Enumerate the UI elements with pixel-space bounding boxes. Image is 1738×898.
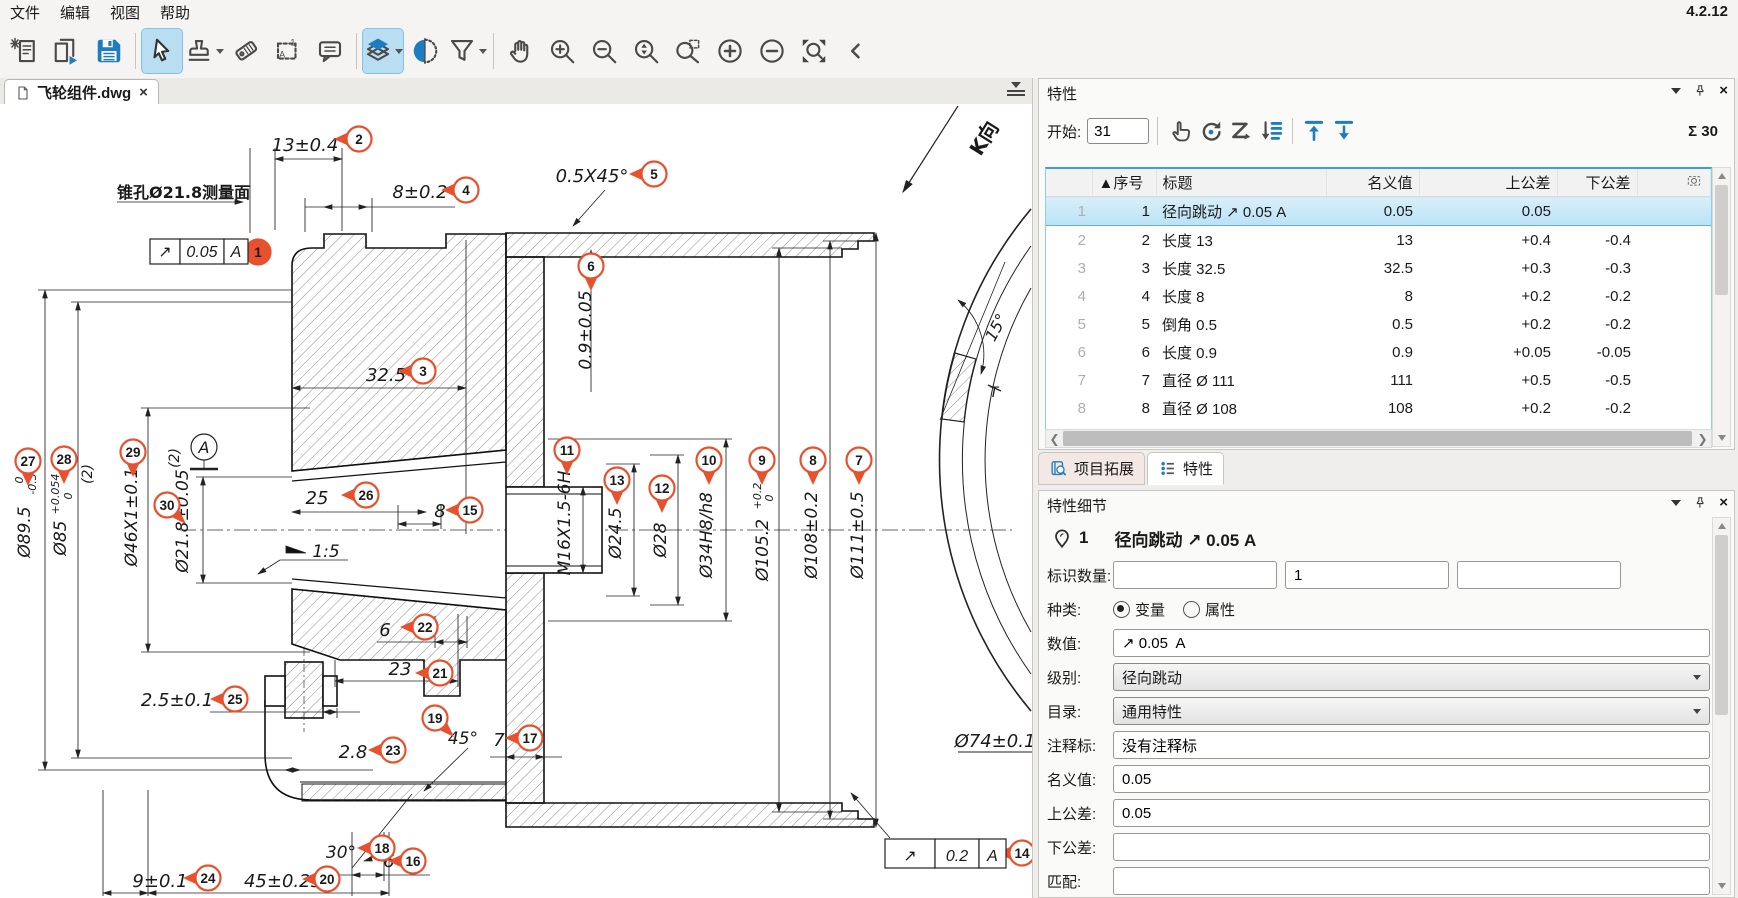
details-panel: 特性细节 × 1 径向跳动 ↗ 0.05 A 标识数量: xyxy=(1038,490,1735,898)
col-nominal: 名义值 xyxy=(1326,169,1419,197)
balloon-15[interactable]: 15 xyxy=(445,498,483,523)
table-cell: -0.4 xyxy=(1557,226,1637,255)
dimension-label: Ø108±0.2 xyxy=(802,491,822,579)
svg-text:15: 15 xyxy=(462,503,478,518)
balloon-2[interactable]: 2 xyxy=(334,127,372,152)
properties-panel-title: 特性 xyxy=(1039,79,1734,107)
dimension-label: Ø105.2 xyxy=(753,519,773,582)
increase-button[interactable] xyxy=(710,29,750,73)
stamp-icon xyxy=(184,36,214,66)
lower-tolerance-input[interactable] xyxy=(1113,833,1710,861)
menu-item-1[interactable]: 编辑 xyxy=(50,0,100,25)
dimension-label: 1:5 xyxy=(312,542,339,562)
decrease-icon xyxy=(757,36,787,66)
feature-control-frame: ↗0.2A xyxy=(885,839,1006,868)
zoom-fit-icon xyxy=(799,36,829,66)
save-icon xyxy=(94,36,124,66)
table-cell: +0.2 xyxy=(1419,282,1557,310)
table-cell: +0.05 xyxy=(1419,338,1557,366)
sortlist-icon xyxy=(1258,118,1284,144)
drawing-canvas[interactable]: 锥孔Ø21.8测量面13±0.48±0.20.5X45°32.52581:562… xyxy=(0,104,1032,898)
balloon-9[interactable]: 9 xyxy=(750,448,775,486)
start-label: 开始: xyxy=(1047,121,1081,142)
table-cell: 0.9 xyxy=(1326,338,1419,366)
svg-text:17: 17 xyxy=(522,731,537,746)
dimension-label: K向 xyxy=(964,117,1003,160)
dimension-label: Ø111±0.5 xyxy=(848,491,868,579)
zoom-fit-button[interactable] xyxy=(794,29,834,73)
id-count-input-2[interactable] xyxy=(1285,561,1449,589)
table-cell xyxy=(1637,310,1711,338)
dimension-label: 6 xyxy=(379,620,390,641)
dimension-label: M16X1.5-6H xyxy=(555,470,575,575)
properties-table: ▲序号 标题 名义值 上公差 下公差 11径向跳动 ↗ 0.05 A0.050.… xyxy=(1046,169,1711,422)
kind-radio-attribute-label: 属性 xyxy=(1205,599,1235,620)
dimension-label: Ø85 xyxy=(51,520,71,556)
table-cell: -0.2 xyxy=(1557,282,1637,310)
table-cell: +0.5 xyxy=(1419,366,1557,394)
upper-tolerance-label: 上公差: xyxy=(1047,803,1113,824)
svg-text:7: 7 xyxy=(855,453,863,468)
svg-text:A: A xyxy=(986,848,998,865)
dimension-label: Ø74±0.1 xyxy=(954,731,1032,752)
hand-point-button[interactable] xyxy=(1166,116,1196,146)
value-input[interactable] xyxy=(1113,629,1710,657)
rotate-button[interactable] xyxy=(1196,116,1226,146)
svg-text:19: 19 xyxy=(427,711,442,726)
dimension-label: T xyxy=(990,385,1000,401)
table-cell: 7 xyxy=(1046,366,1092,394)
hscroll-left-icon[interactable]: ❮ xyxy=(1046,432,1063,446)
dropdown-arrow-icon[interactable] xyxy=(216,49,224,54)
document-tab[interactable]: 飞轮组件.dwg × xyxy=(4,79,159,105)
table-cell: 长度 13 xyxy=(1156,226,1326,255)
level-select[interactable]: 径向跳动 xyxy=(1113,663,1710,691)
balloon-23[interactable]: 23 xyxy=(368,738,406,763)
select-cursor-button[interactable] xyxy=(142,29,182,73)
svg-text:25: 25 xyxy=(227,692,243,707)
menu-item-2[interactable]: 视图 xyxy=(100,0,150,25)
dimension-label: 0 xyxy=(763,495,776,502)
col-lower: 下公差 xyxy=(1557,169,1637,197)
table-cell: 108 xyxy=(1326,394,1419,422)
hscroll-thumb[interactable] xyxy=(1063,431,1692,446)
svg-text:16: 16 xyxy=(405,854,421,869)
svg-text:3: 3 xyxy=(419,364,427,379)
table-cell: 111 xyxy=(1326,366,1419,394)
zoom-out-button[interactable] xyxy=(584,29,624,73)
table-cell xyxy=(1637,197,1711,226)
note-input[interactable] xyxy=(1113,731,1710,759)
balloon-19[interactable]: 19 xyxy=(423,706,455,738)
sortlist-button[interactable] xyxy=(1256,116,1286,146)
table-cell xyxy=(1637,366,1711,394)
id-count-input-3[interactable] xyxy=(1457,561,1621,589)
table-cell xyxy=(1557,197,1637,226)
dimension-label: Ø34H8/h8 xyxy=(697,492,717,579)
menu-item-0[interactable]: 文件 xyxy=(0,0,50,25)
panel-close-icon[interactable]: × xyxy=(1719,84,1728,98)
table-cell: 长度 32.5 xyxy=(1156,254,1326,282)
svg-text:9: 9 xyxy=(758,453,766,468)
table-row[interactable]: 11径向跳动 ↗ 0.05 A0.050.05 xyxy=(1046,197,1711,226)
select-cursor-icon xyxy=(147,36,177,66)
svg-text:5: 5 xyxy=(650,167,658,182)
match-label: 匹配: xyxy=(1047,871,1113,892)
table-cell: 1 xyxy=(1046,197,1092,226)
table-cell: 6 xyxy=(1092,338,1156,366)
svg-text:0.2: 0.2 xyxy=(946,848,968,865)
tag-icon xyxy=(231,36,261,66)
filter-icon xyxy=(447,36,477,66)
main-toolbar xyxy=(0,24,1738,79)
balloon-13[interactable]: 13 xyxy=(605,468,630,506)
svg-text:21: 21 xyxy=(432,666,448,681)
filter-button[interactable] xyxy=(447,29,487,73)
balloon-10[interactable]: 10 xyxy=(697,448,722,486)
balloon-18[interactable]: 18 xyxy=(357,836,395,861)
project-expand-icon xyxy=(1049,459,1068,478)
down-bar-icon xyxy=(1331,118,1357,144)
table-cell: 长度 8 xyxy=(1156,282,1326,310)
kind-radio-attribute[interactable] xyxy=(1183,601,1200,618)
table-cell xyxy=(1637,254,1711,282)
kind-label: 种类: xyxy=(1047,599,1113,620)
up-bar-button[interactable] xyxy=(1299,116,1329,146)
dimension-label: 9±0.1 xyxy=(132,871,187,892)
table-row[interactable]: 22长度 1313+0.4-0.4 xyxy=(1046,226,1711,255)
svg-text:22: 22 xyxy=(417,620,432,635)
region-select-button[interactable] xyxy=(268,29,308,73)
open-document-icon xyxy=(52,36,82,66)
dimension-label: 45° xyxy=(448,729,478,749)
start-input[interactable] xyxy=(1087,118,1149,144)
svg-text:11: 11 xyxy=(560,443,575,458)
table-cell: 直径 Ø 111 xyxy=(1156,366,1326,394)
detail-item-title: 径向跳动 ↗ 0.05 A xyxy=(1114,526,1256,551)
balloon-7[interactable]: 7 xyxy=(847,448,872,486)
table-hscrollbar[interactable]: ❮ ❯ xyxy=(1045,429,1712,448)
zoom-window-icon xyxy=(673,36,703,66)
svg-text:26: 26 xyxy=(358,488,374,503)
dimension-label: 0 xyxy=(62,493,75,500)
svg-text:8: 8 xyxy=(809,453,817,468)
table-cell: 4 xyxy=(1046,282,1092,310)
catalog-label: 目录: xyxy=(1047,701,1113,722)
table-cell: 13 xyxy=(1326,226,1419,255)
kind-radio-variable[interactable] xyxy=(1113,601,1130,618)
level-value: 径向跳动 xyxy=(1122,667,1182,688)
svg-text:↗: ↗ xyxy=(903,848,916,865)
id-count-label: 标识数量: xyxy=(1047,565,1113,586)
table-cell: 2 xyxy=(1092,226,1156,255)
comment-button[interactable] xyxy=(310,29,350,73)
table-cell: 5 xyxy=(1092,310,1156,338)
table-row[interactable]: 77直径 Ø 111111+0.5-0.5 xyxy=(1046,366,1711,394)
table-cell: 倒角 0.5 xyxy=(1156,310,1326,338)
zoom-out-icon xyxy=(589,36,619,66)
new-document-button[interactable] xyxy=(5,29,45,73)
table-cell: +0.4 xyxy=(1419,226,1557,255)
svg-text:10: 10 xyxy=(701,453,716,468)
dimension-label: 13±0.4 xyxy=(272,135,339,156)
dimension-label: Ø28 xyxy=(651,522,671,558)
nominal-label: 名义值: xyxy=(1047,769,1113,790)
table-row[interactable]: 88直径 Ø 108108+0.2-0.2 xyxy=(1046,394,1711,422)
dimension-label: 2.5±0.1 xyxy=(141,690,213,711)
table-cell: 2 xyxy=(1046,226,1092,255)
zoom-range-button[interactable] xyxy=(626,29,666,73)
id-count-input-1[interactable] xyxy=(1113,561,1277,589)
table-cell: +0.3 xyxy=(1419,254,1557,282)
table-cell: 6 xyxy=(1046,338,1092,366)
table-cell: 7 xyxy=(1092,366,1156,394)
document-area: 飞轮组件.dwg × xyxy=(0,78,1032,898)
table-row[interactable]: 33长度 32.532.5+0.3-0.3 xyxy=(1046,254,1711,282)
table-cell: 3 xyxy=(1092,254,1156,282)
details-pin-icon[interactable] xyxy=(1693,496,1707,510)
match-input[interactable] xyxy=(1113,867,1710,895)
up-bar-icon xyxy=(1301,118,1327,144)
feature-control-frame: ↗0.05A xyxy=(150,239,248,264)
panel-pin-icon[interactable] xyxy=(1693,84,1707,98)
table-vscrollbar[interactable] xyxy=(1712,167,1731,447)
dropdown-arrow-icon[interactable] xyxy=(395,49,403,54)
svg-text:13: 13 xyxy=(609,473,625,488)
tab-project-expand[interactable]: 项目拓展 xyxy=(1038,452,1145,485)
details-collapse-icon[interactable] xyxy=(1671,500,1681,506)
dimension-label: 32.5 xyxy=(366,365,406,386)
zoom-in-button[interactable] xyxy=(542,29,582,73)
dimension-label: 8±0.2 xyxy=(392,182,447,203)
table-cell: -0.5 xyxy=(1557,366,1637,394)
svg-text:23: 23 xyxy=(385,743,401,758)
table-cell: 直径 Ø 108 xyxy=(1156,394,1326,422)
table-cell: 3 xyxy=(1046,254,1092,282)
tab-close-button[interactable]: × xyxy=(139,84,148,101)
workspace: 飞轮组件.dwg × xyxy=(0,78,1738,898)
side-panels: 特性 × 开始: Σ 30 ▲序号 标题 xyxy=(1032,78,1738,898)
vscroll-thumb[interactable] xyxy=(1715,185,1728,295)
new-document-icon xyxy=(10,36,40,66)
dimension-label: 25 xyxy=(306,488,329,509)
balloon-21[interactable]: 21 xyxy=(415,661,453,686)
tab-properties-label: 特性 xyxy=(1183,458,1213,479)
table-header-row[interactable]: ▲序号 标题 名义值 上公差 下公差 xyxy=(1046,169,1711,197)
balloon-8[interactable]: 8 xyxy=(801,448,826,486)
svg-text:30: 30 xyxy=(159,498,174,513)
svg-text:↗: ↗ xyxy=(158,244,171,261)
zoom-in-icon xyxy=(547,36,577,66)
table-cell: 5 xyxy=(1046,310,1092,338)
app-version: 4.2.12 xyxy=(1686,3,1728,20)
lower-tolerance-label: 下公差: xyxy=(1047,837,1113,858)
zorder-icon xyxy=(1228,118,1254,144)
table-cell: 4 xyxy=(1092,282,1156,310)
detail-item-number: 1 xyxy=(1079,528,1088,548)
balloon-12[interactable]: 12 xyxy=(650,476,675,514)
k-view-arcs xyxy=(939,209,1032,752)
menu-item-3[interactable]: 帮助 xyxy=(150,0,200,25)
dimension-label: 7 xyxy=(493,730,505,751)
table-row[interactable]: 66长度 0.90.9+0.05-0.05 xyxy=(1046,338,1711,366)
document-tabstrip: 飞轮组件.dwg × xyxy=(0,78,1032,105)
tab-properties[interactable]: 特性 xyxy=(1147,452,1224,485)
table-cell: 0.5 xyxy=(1326,310,1419,338)
menu-bar: 文件编辑视图帮助 xyxy=(0,0,1738,24)
section-view-icon xyxy=(410,36,440,66)
level-label: 级别: xyxy=(1047,667,1113,688)
details-close-icon[interactable]: × xyxy=(1719,496,1728,510)
table-cell xyxy=(1637,394,1711,422)
dimension-label: (2) xyxy=(167,448,183,468)
table-row[interactable]: 44长度 88+0.2-0.2 xyxy=(1046,282,1711,310)
decrease-button[interactable] xyxy=(752,29,792,73)
pan-hand-icon xyxy=(505,36,535,66)
feature-list-icon xyxy=(1158,459,1177,478)
svg-text:18: 18 xyxy=(374,841,390,856)
balloon-24[interactable]: 24 xyxy=(183,866,221,891)
layers-icon xyxy=(363,36,393,66)
svg-text:A: A xyxy=(230,244,242,261)
zorder-button[interactable] xyxy=(1226,116,1256,146)
dimension-label: +0.054 xyxy=(49,474,62,515)
kind-radio-variable-label: 变量 xyxy=(1135,599,1165,620)
table-row[interactable]: 55倒角 0.50.5+0.2-0.2 xyxy=(1046,310,1711,338)
table-cell: 1 xyxy=(1092,197,1156,226)
col-title: 标题 xyxy=(1156,169,1326,197)
table-cell xyxy=(1637,282,1711,310)
balloon-11[interactable]: 11 xyxy=(555,438,580,476)
table-cell: 32.5 xyxy=(1326,254,1419,282)
document-tab-label: 飞轮组件.dwg xyxy=(37,82,131,103)
table-cell: +0.2 xyxy=(1419,310,1557,338)
table-cell xyxy=(1637,338,1711,366)
svg-text:24: 24 xyxy=(200,871,216,886)
save-button[interactable] xyxy=(89,29,129,73)
vscroll-up-icon[interactable] xyxy=(1718,523,1726,529)
balloon-6[interactable]: 6 xyxy=(579,254,604,292)
svg-text:4: 4 xyxy=(462,183,470,198)
pan-hand-button[interactable] xyxy=(500,29,540,73)
svg-text:20: 20 xyxy=(319,872,334,887)
tag-button[interactable] xyxy=(226,29,266,73)
tab-project-expand-label: 项目拓展 xyxy=(1074,458,1134,479)
dimension-label: A xyxy=(198,438,210,457)
region-select-icon xyxy=(273,36,303,66)
balloon-25[interactable]: 25 xyxy=(210,687,248,712)
table-cell: 8 xyxy=(1092,394,1156,422)
svg-text:0.05: 0.05 xyxy=(186,244,217,261)
table-cell: -0.2 xyxy=(1557,394,1637,422)
open-document-button[interactable] xyxy=(47,29,87,73)
details-vscrollbar[interactable] xyxy=(1712,517,1731,895)
dimension-label: (2) xyxy=(80,464,96,484)
vscroll-thumb[interactable] xyxy=(1715,535,1728,715)
dimension-label: Ø24.5 xyxy=(606,507,626,559)
note-label: 注释标: xyxy=(1047,735,1113,756)
dropdown-arrow-icon[interactable] xyxy=(479,49,487,54)
table-cell: 8 xyxy=(1326,282,1419,310)
rotate-icon xyxy=(1198,118,1224,144)
zoom-window-button[interactable] xyxy=(668,29,708,73)
table-cell xyxy=(1637,226,1711,255)
dimension-label: Ø89.5 xyxy=(15,506,35,558)
catalog-select[interactable]: 通用特性 xyxy=(1113,697,1710,725)
col-upper: 上公差 xyxy=(1419,169,1557,197)
vscroll-down-icon[interactable] xyxy=(1718,435,1726,441)
sum-count: Σ 30 xyxy=(1688,123,1718,140)
dimension-label: 0.5X45° xyxy=(556,166,629,187)
dimension-label: 0 xyxy=(13,477,26,484)
dimension-label: 锥孔Ø21.8测量面 xyxy=(117,183,250,202)
details-panel-title: 特性细节 xyxy=(1039,491,1734,519)
balloon-pin-icon xyxy=(1051,527,1073,549)
table-cell: -0.3 xyxy=(1557,254,1637,282)
section-view-button[interactable] xyxy=(405,29,445,73)
table-cell: +0.2 xyxy=(1419,394,1557,422)
dimension-label: 2.8 xyxy=(339,742,368,763)
dimension-label: 0.9±0.05 xyxy=(576,290,596,369)
svg-text:1: 1 xyxy=(254,245,262,260)
svg-text:29: 29 xyxy=(125,445,140,460)
panel-collapse-icon[interactable] xyxy=(1671,88,1681,94)
svg-text:28: 28 xyxy=(56,452,72,467)
svg-text:27: 27 xyxy=(20,454,35,469)
document-icon xyxy=(15,85,31,101)
dimension-label: Ø46X1±0.1 xyxy=(122,468,142,568)
value-label: 数值: xyxy=(1047,633,1113,654)
collapse-button[interactable] xyxy=(836,29,876,73)
vscroll-up-icon[interactable] xyxy=(1718,173,1726,179)
hand-point-icon xyxy=(1168,118,1194,144)
down-bar-button[interactable] xyxy=(1329,116,1359,146)
table-cell: 长度 0.9 xyxy=(1156,338,1326,366)
svg-text:12: 12 xyxy=(654,481,669,496)
hscroll-right-icon[interactable]: ❯ xyxy=(1694,432,1711,446)
upper-tolerance-input[interactable] xyxy=(1113,799,1710,827)
tab-list-menu-button[interactable] xyxy=(1006,82,1026,100)
svg-text:14: 14 xyxy=(1014,846,1030,861)
col-seq: ▲序号 xyxy=(1092,169,1156,197)
balloon-26[interactable]: 26 xyxy=(341,483,379,508)
stamp-button[interactable] xyxy=(184,29,224,73)
panel-tabs: 项目拓展 特性 xyxy=(1038,452,1226,484)
nominal-input[interactable] xyxy=(1113,765,1710,793)
properties-panel: 特性 × 开始: Σ 30 ▲序号 标题 xyxy=(1038,78,1735,450)
selection-camera-icon[interactable] xyxy=(1684,172,1704,189)
properties-table-wrap: ▲序号 标题 名义值 上公差 下公差 11径向跳动 ↗ 0.05 A0.050.… xyxy=(1045,167,1712,430)
chevron-down-icon xyxy=(1693,675,1701,680)
svg-text:2: 2 xyxy=(355,132,363,147)
table-cell: 8 xyxy=(1046,394,1092,422)
balloon-5[interactable]: 5 xyxy=(629,162,667,187)
table-cell: -0.05 xyxy=(1557,338,1637,366)
chevron-down-icon xyxy=(1693,709,1701,714)
table-cell: 径向跳动 ↗ 0.05 A xyxy=(1156,197,1326,226)
zoom-range-icon xyxy=(631,36,661,66)
table-cell: -0.2 xyxy=(1557,310,1637,338)
properties-toolbar: 开始: xyxy=(1047,109,1726,153)
table-cell: 0.05 xyxy=(1419,197,1557,226)
dimension-label: 8 xyxy=(434,501,445,522)
svg-text:6: 6 xyxy=(587,259,595,274)
layers-button[interactable] xyxy=(363,29,403,73)
vscroll-down-icon[interactable] xyxy=(1718,883,1726,889)
collapse-icon xyxy=(841,36,871,66)
increase-icon xyxy=(715,36,745,66)
catalog-value: 通用特性 xyxy=(1122,701,1182,722)
